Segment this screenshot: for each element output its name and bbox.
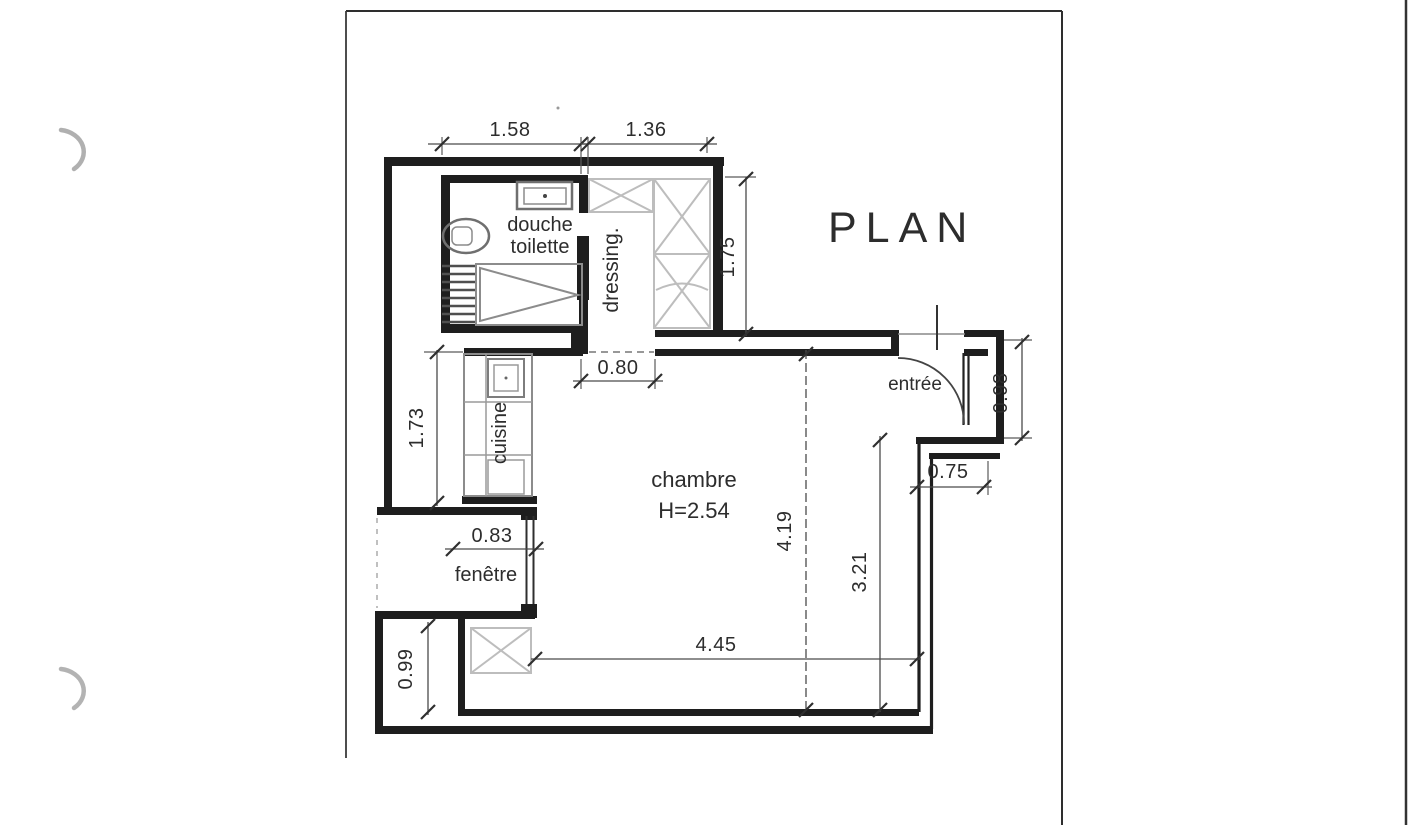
window-jamb-top — [521, 507, 537, 520]
dim-value: 4.45 — [696, 634, 737, 656]
dimension-0.80: 0.80 — [573, 357, 663, 389]
dim-value: 0.83 — [472, 525, 513, 547]
wall-segment — [571, 330, 583, 356]
shower-tray — [476, 264, 582, 325]
room-label-chambre: chambre — [651, 467, 737, 492]
dimension-3.21: 3.21 — [849, 433, 887, 717]
dim-value: 1.75 — [717, 237, 739, 278]
scanned-page: 1.58 1.36 1.75 0.80 1.73 0.83 — [0, 0, 1410, 825]
dim-value: 1.36 — [626, 119, 667, 141]
wall-segment — [377, 507, 527, 515]
dim-value: 0.80 — [598, 357, 639, 379]
dimension-0.99: 0.99 — [395, 619, 435, 719]
dimension-0.83: 0.83 — [445, 525, 544, 556]
plan-title: PLAN — [828, 204, 976, 252]
closet-box — [471, 628, 531, 673]
scan-speck — [557, 107, 560, 110]
window-fenetre — [527, 516, 534, 604]
dim-value: 0.99 — [395, 649, 417, 690]
wall-segment — [441, 175, 450, 333]
wall-segment — [384, 157, 724, 166]
room-label-toilette: toilette — [511, 236, 570, 258]
floor-plan-scan: 1.58 1.36 1.75 0.80 1.73 0.83 — [0, 0, 1410, 825]
dimension-0.75: 0.75 — [910, 461, 992, 495]
dimension-4.45: 4.45 — [528, 634, 924, 666]
wall-segment — [929, 453, 1000, 459]
kitchen-sink — [488, 359, 524, 397]
wall-segment — [458, 709, 919, 716]
dim-value: 4.19 — [774, 511, 796, 552]
binder-mark-bottom — [61, 669, 84, 708]
dim-value: 3.21 — [849, 552, 871, 593]
door-jamb-cap — [891, 330, 899, 356]
wardrobe-box — [589, 179, 653, 212]
room-label-chambre-height: H=2.54 — [658, 498, 730, 523]
washbasin — [517, 182, 572, 209]
shower-tray-triangle — [480, 268, 578, 321]
room-label-douche: douche — [507, 214, 573, 236]
dim-value: 1.58 — [490, 119, 531, 141]
dim-value: 0.98 — [990, 373, 1012, 414]
wall-segment — [655, 330, 898, 337]
room-label-fenetre: fenêtre — [455, 564, 517, 586]
wall-segment — [655, 349, 898, 356]
dimension-1.73: 1.73 — [406, 345, 463, 510]
wall-segment — [462, 496, 537, 504]
dimension-4.19: 4.19 — [774, 347, 813, 717]
shower — [442, 264, 582, 325]
wall-segment — [916, 437, 1004, 444]
wall-segment — [458, 618, 465, 712]
room-label-cuisine: cuisine — [489, 402, 511, 464]
binder-mark-top — [61, 130, 84, 169]
room-label-entree: entrée — [888, 374, 942, 395]
wall-segment — [375, 611, 535, 619]
dim-value: 1.73 — [406, 408, 428, 449]
page-border — [346, 11, 1062, 825]
wall-segment — [579, 175, 588, 213]
dim-value: 0.75 — [928, 461, 969, 483]
wardrobe-column — [654, 179, 710, 328]
entry-door — [898, 305, 969, 425]
wall-segment — [384, 157, 392, 515]
wall-segment — [375, 611, 383, 734]
room-label-dressing: dressing. — [600, 227, 623, 312]
wall-segment — [375, 726, 933, 734]
